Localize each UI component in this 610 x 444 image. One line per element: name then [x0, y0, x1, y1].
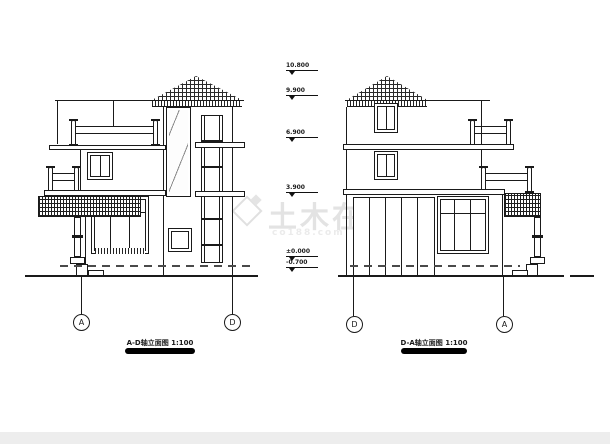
railing-rail — [475, 126, 506, 127]
grid-line — [81, 277, 82, 314]
flat-roof-line — [55, 100, 164, 101]
elevation-marker: 3.900 — [286, 184, 320, 197]
post-cap — [468, 119, 477, 121]
elevation-triangle-icon — [289, 96, 295, 100]
drawing-caption: D-A轴立面图 1:100 — [379, 339, 489, 347]
rung-line — [202, 218, 222, 220]
elevation-value: 10.800 — [286, 62, 320, 70]
window-inner — [440, 199, 486, 251]
elevation-value: 6.900 — [286, 129, 320, 137]
axis-letter: A — [502, 321, 507, 329]
hip-roof — [150, 76, 244, 101]
rung-line — [202, 166, 222, 168]
indoor-floor-dashed-line — [350, 265, 520, 267]
axis-bubble: D — [224, 314, 241, 331]
tiled-canopy — [38, 196, 141, 217]
window-mullion — [386, 106, 387, 130]
caption-underline-bar — [125, 348, 195, 354]
wall-line — [80, 150, 81, 191]
post-cap — [69, 119, 78, 121]
window-mullion — [386, 154, 387, 177]
door-mullion — [401, 198, 402, 275]
indoor-floor-dashed-line — [60, 265, 256, 267]
elevation-marker: 9.900 — [286, 87, 320, 100]
post-cap — [72, 166, 81, 168]
wall-line — [57, 100, 58, 144]
sill-grille — [95, 248, 145, 254]
door-mullion — [385, 198, 386, 275]
post-cap — [479, 166, 488, 168]
railing-rail — [53, 180, 74, 181]
railing-rail — [475, 133, 506, 134]
watermark-subtext: co188.com — [272, 228, 345, 238]
railing-post — [506, 120, 511, 146]
railing-rail — [486, 173, 527, 174]
hip-roof — [345, 76, 429, 101]
floor-slab — [343, 189, 505, 195]
railing-rail — [76, 126, 154, 127]
axis-bubble: A — [496, 316, 513, 333]
ground-line — [570, 275, 594, 277]
wall-line — [502, 191, 503, 276]
railing-rail — [486, 180, 527, 181]
axis-bubble: A — [73, 314, 90, 331]
railing-post — [527, 167, 532, 193]
window-mullion — [454, 200, 455, 251]
axis-letter: A — [79, 319, 84, 327]
window-mullion — [129, 213, 130, 251]
post-cap — [525, 166, 534, 168]
window-inner — [171, 231, 189, 249]
column-ring — [72, 235, 83, 238]
frame-line — [204, 116, 205, 262]
cornice-band — [195, 142, 245, 148]
column-base — [70, 257, 85, 264]
axis-bubble: D — [346, 316, 363, 333]
cad-elevation-sheet: 土木在线 co188.com — [0, 0, 610, 444]
ground-line — [338, 275, 564, 277]
door-mullion — [417, 198, 418, 275]
window-transom — [440, 213, 486, 214]
elevation-value: 9.900 — [286, 87, 320, 95]
door-mullion — [369, 198, 370, 275]
post-cap — [504, 119, 513, 121]
floor-slab — [49, 145, 166, 150]
elevation-marker: -0.700 — [286, 259, 320, 272]
tiled-canopy — [504, 193, 541, 217]
cornice-band — [195, 191, 245, 197]
grid-line — [232, 277, 233, 314]
window-mullion — [110, 213, 111, 251]
railing-rail — [53, 173, 74, 174]
window-mullion — [470, 200, 471, 251]
wall-line — [113, 100, 114, 126]
elevation-marker: 6.900 — [286, 129, 320, 142]
glass-hatch — [169, 110, 188, 194]
frame-line — [219, 116, 220, 262]
window-mullion — [100, 155, 101, 177]
railing-rail — [76, 133, 154, 134]
elevation-value: 3.900 — [286, 184, 320, 192]
bottom-strip — [0, 432, 610, 444]
column-ring — [532, 235, 543, 238]
elevation-value: -0.700 — [286, 259, 320, 267]
axis-letter: D — [229, 319, 235, 327]
caption-underline-bar — [401, 348, 467, 354]
elevation-triangle-icon — [289, 71, 295, 75]
axis-letter: D — [351, 321, 357, 329]
floor-slab — [343, 144, 514, 150]
elevation-triangle-icon — [289, 138, 295, 142]
post-cap — [151, 119, 160, 121]
grid-line — [353, 277, 354, 316]
rung-line — [202, 244, 222, 246]
elevation-triangle-icon — [289, 268, 295, 272]
elevation-marker: 10.800 — [286, 62, 320, 75]
column-base — [530, 257, 545, 264]
ground-line — [25, 275, 258, 277]
drawing-caption: A-D轴立面图 1:100 — [105, 339, 215, 347]
elevation-triangle-icon — [289, 193, 295, 197]
elevation-value: ±0.000 — [286, 248, 320, 256]
grid-line — [503, 277, 504, 316]
post-cap — [46, 166, 55, 168]
